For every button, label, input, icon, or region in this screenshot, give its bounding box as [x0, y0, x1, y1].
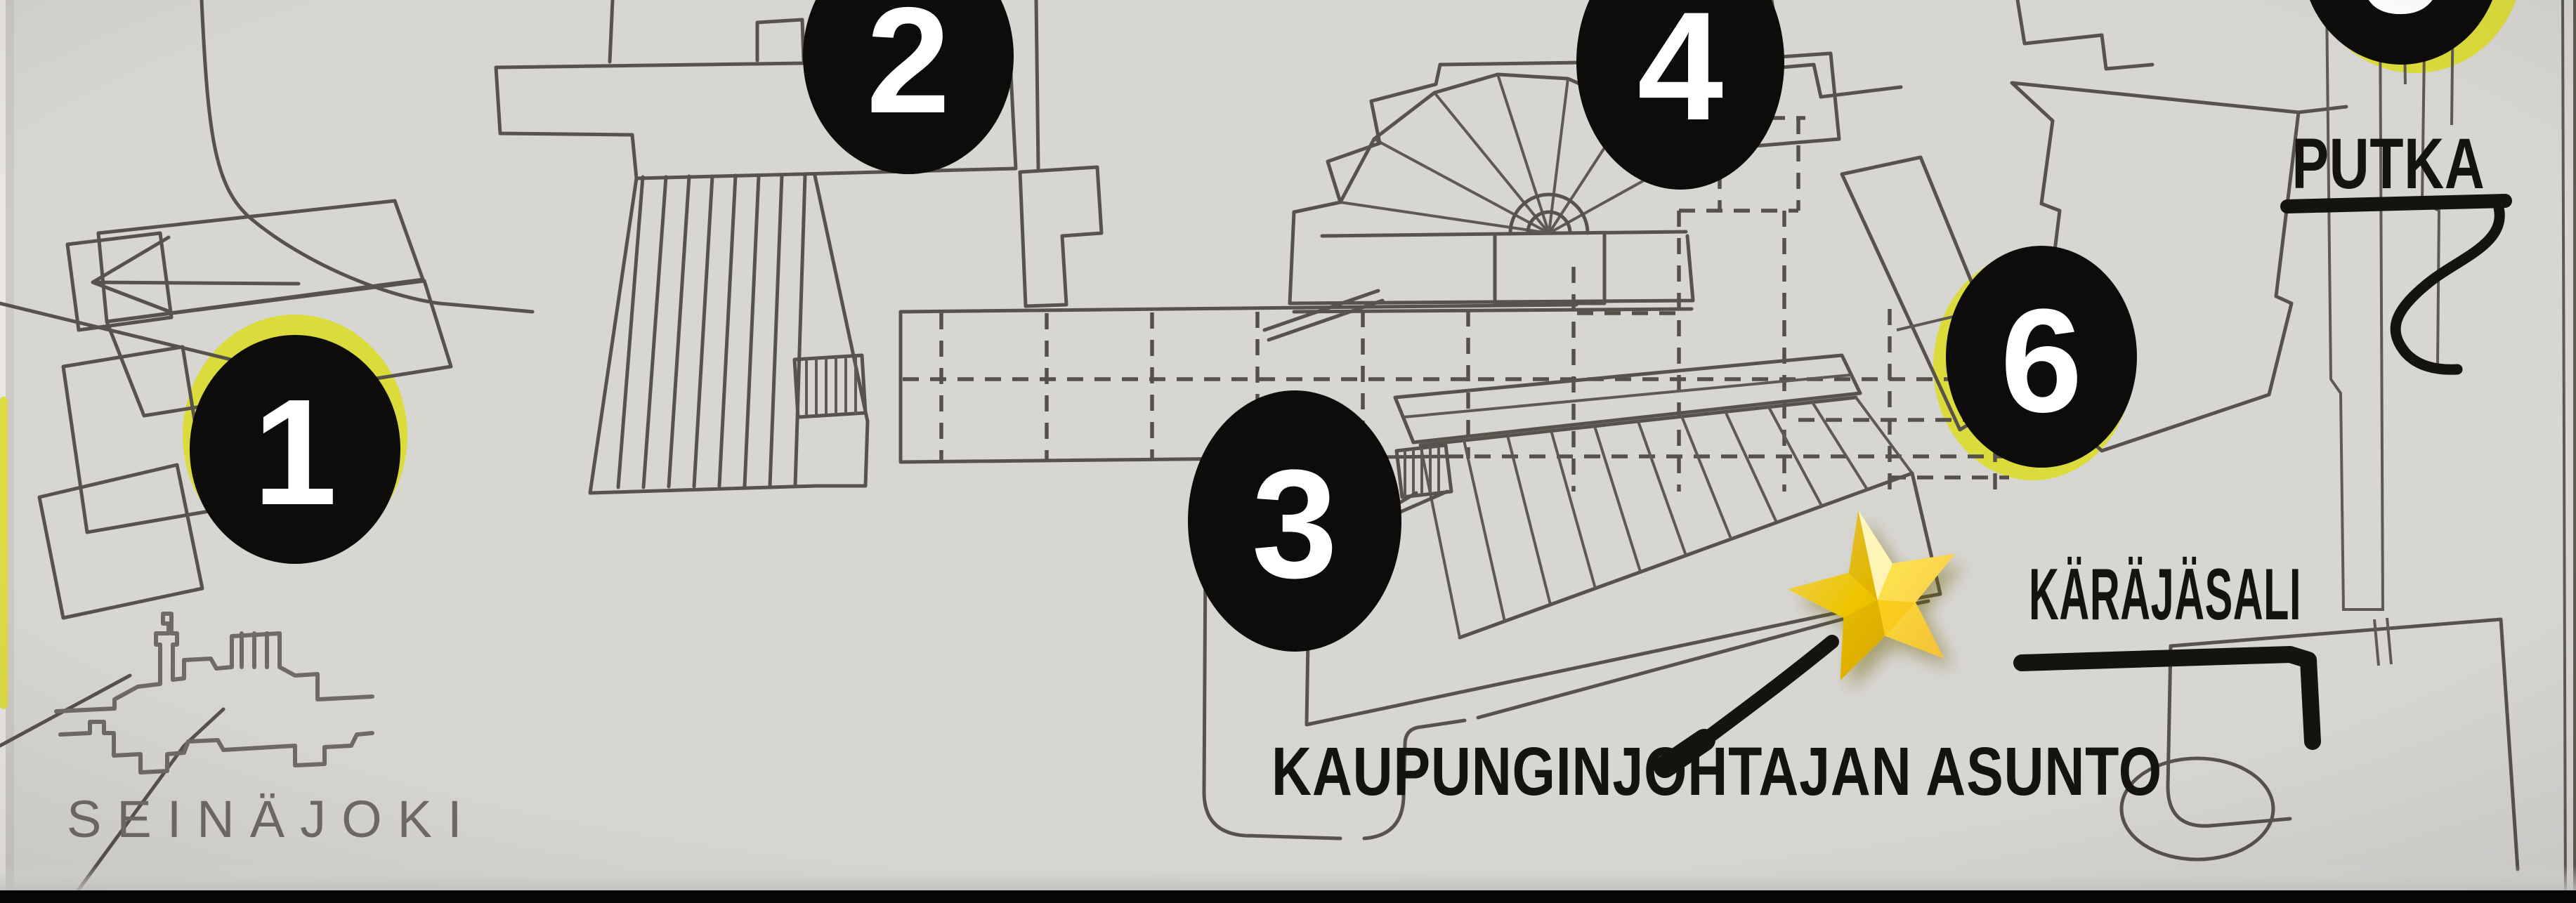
- photo-vignette: [0, 0, 2576, 903]
- bottom-black-bar: [0, 890, 2576, 903]
- paper-bottom-edge: [0, 865, 2576, 895]
- site-map-canvas: SEINÄJOKI PUTKA KÄRÄJÄSALI KAUPUNGINJOHT…: [0, 0, 2576, 903]
- seinajoki-site-map-photo: SEINÄJOKI PUTKA KÄRÄJÄSALI KAUPUNGINJOHT…: [0, 0, 2576, 903]
